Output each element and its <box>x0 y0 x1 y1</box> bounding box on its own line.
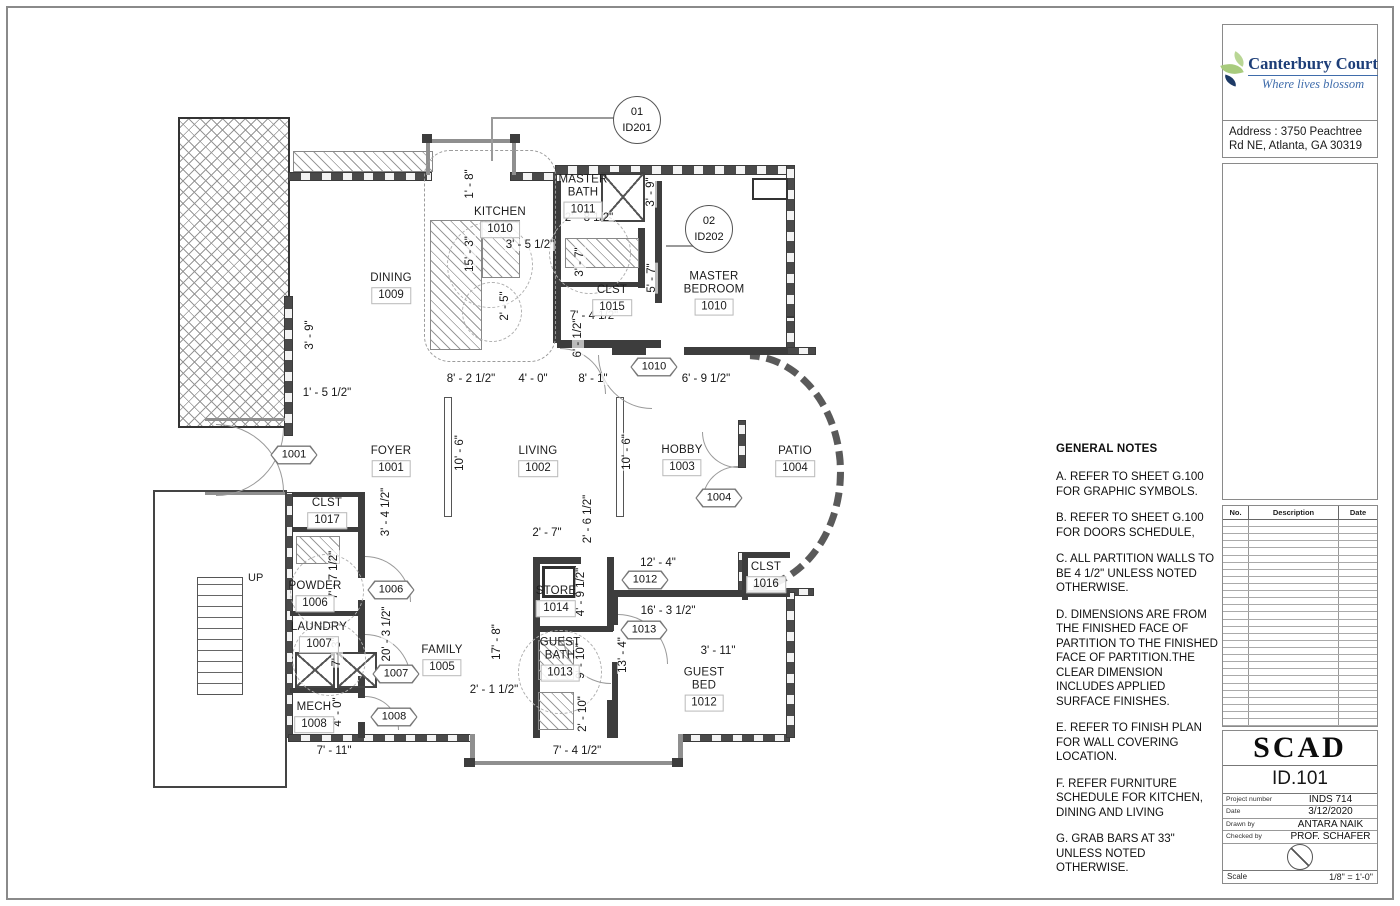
door-tag: 1013 <box>620 620 667 639</box>
wall-segment <box>284 296 293 436</box>
wall-segment <box>612 347 646 355</box>
leaf-icon <box>1223 74 1238 86</box>
revision-col-header: No. <box>1223 506 1249 519</box>
room-label-1011: MASTERBATH1011 <box>558 174 607 219</box>
dimension: 12' - 4" <box>639 557 677 569</box>
dimension: 2' - 5" <box>499 290 511 321</box>
wall-segment <box>672 758 683 767</box>
room-label-1012: GUESTBED1012 <box>684 667 725 712</box>
general-notes-title: GENERAL NOTES <box>1056 442 1218 456</box>
dimension: 16' - 3 1/2" <box>640 605 697 617</box>
wall-segment <box>358 534 365 578</box>
revision-row <box>1223 605 1377 612</box>
project-field-row: Project numberINDS 714 <box>1223 794 1377 807</box>
field-label: Checked by <box>1223 833 1284 840</box>
wall-segment <box>510 134 520 143</box>
room-label-1010: MASTERBEDROOM1010 <box>684 271 745 316</box>
revision-row <box>1223 712 1377 719</box>
dimension: 6' - 9 1/2" <box>681 373 731 385</box>
revision-row <box>1223 527 1377 534</box>
revision-row <box>1223 577 1377 584</box>
field-value: PROF. SCHAFER <box>1284 831 1377 842</box>
dimension: 15' - 3" <box>464 235 476 273</box>
revision-row <box>1223 719 1377 726</box>
revision-row <box>1223 612 1377 619</box>
door-tag: 1001 <box>270 445 317 464</box>
general-note: G. GRAB BARS AT 33" UNLESS NOTED OTHERWI… <box>1056 832 1218 875</box>
revision-table-rows <box>1223 520 1377 726</box>
project-field-row: Date3/12/2020 <box>1223 806 1377 819</box>
revision-row <box>1223 591 1377 598</box>
dimension: 2' - 6 1/2" <box>582 494 594 544</box>
revision-table-header: No.DescriptionDate <box>1223 506 1377 520</box>
dimension: 20' - 3 1/2" <box>381 606 393 663</box>
titleblock-logo-box: Canterbury Court Where lives blossom Add… <box>1222 24 1378 158</box>
room-label-1016: CLST1016 <box>746 561 786 593</box>
revision-row <box>1223 655 1377 662</box>
scale-value: 1/8" = 1'-0" <box>1329 872 1373 882</box>
door-tag: 1012 <box>621 570 668 589</box>
room-label-1006: POWDER1006 <box>289 580 342 612</box>
room-label-1015: CLST1015 <box>592 284 632 316</box>
room-label-1008: MECH1008 <box>294 701 334 733</box>
revision-row <box>1223 698 1377 705</box>
wall-segment <box>428 139 516 143</box>
wall-segment <box>738 420 746 468</box>
address: Address : 3750 Peachtree Rd NE, Atlanta,… <box>1223 120 1377 158</box>
room-label-1007: LAUNDRY1007 <box>291 621 347 653</box>
dimension: 5' - 7" <box>646 262 658 293</box>
north-symbol-row <box>1223 844 1377 871</box>
revision-col-header: Description <box>1249 506 1339 519</box>
room-label-1014: STORE1014 <box>536 585 576 617</box>
dimension: 2' - 1 1/2" <box>469 684 519 696</box>
detail-callout: 01ID201 <box>613 96 661 144</box>
dimension: 6' - 1/2" <box>572 318 584 359</box>
wall-segment <box>178 117 290 428</box>
room-label-1017: CLST1017 <box>307 497 347 529</box>
logo: Canterbury Court Where lives blossom <box>1223 25 1377 120</box>
field-label: Date <box>1223 808 1284 815</box>
wall-segment <box>288 172 432 181</box>
wall-segment <box>293 151 433 172</box>
door-tag: 1004 <box>695 488 742 507</box>
field-value: ANTARA NAIK <box>1284 819 1377 830</box>
door-tag: 1006 <box>367 580 414 599</box>
scale-row: Scale 1/8" = 1'-0" <box>1223 871 1377 883</box>
dimension: 1' - 8" <box>464 168 476 199</box>
wall-segment <box>444 397 452 517</box>
revision-row <box>1223 541 1377 548</box>
general-note: E. REFER TO FINISH PLAN FOR WALL COVERIN… <box>1056 721 1218 764</box>
dimension: 1' - 5 1/2" <box>302 387 352 399</box>
school-name: SCAD <box>1223 731 1377 766</box>
revision-row <box>1223 548 1377 555</box>
revision-row <box>1223 534 1377 541</box>
revision-row <box>1223 691 1377 698</box>
general-note: A. REFER TO SHEET G.100 FOR GRAPHIC SYMB… <box>1056 470 1218 499</box>
dimension: 13' - 4" <box>617 636 629 674</box>
dimension: 8' - 2 1/2" <box>446 373 496 385</box>
general-note: F. REFER FURNITURE SCHEDULE FOR KITCHEN,… <box>1056 777 1218 820</box>
room-label-1010: KITCHEN1010 <box>474 206 526 238</box>
revision-row <box>1223 676 1377 683</box>
dimension: 10' - 6" <box>454 434 466 472</box>
general-notes: GENERAL NOTES A. REFER TO SHEET G.100 FO… <box>1056 442 1218 888</box>
dimension: 3' - 4 1/2" <box>380 487 392 537</box>
revision-row <box>1223 662 1377 669</box>
dimension: 2' - 7" <box>531 527 562 539</box>
revision-row <box>1223 641 1377 648</box>
wall-segment <box>678 734 790 742</box>
project-field-row: Checked byPROF. SCHAFER <box>1223 831 1377 844</box>
dimension: 7' - 4 1/2" <box>552 745 602 757</box>
wall-segment <box>205 418 285 421</box>
field-label: Project number <box>1223 796 1284 803</box>
room-label-1003: HOBBY1003 <box>661 444 702 476</box>
clearance-circle <box>462 282 522 342</box>
general-note: D. DIMENSIONS ARE FROM THE FINISHED FACE… <box>1056 608 1218 709</box>
dimension: 3' - 5 1/2" <box>505 239 555 251</box>
dimension: 10' - 6" <box>621 433 633 471</box>
wall-segment <box>742 552 790 558</box>
wall-segment <box>492 117 614 119</box>
dimension: 7' - 11" <box>316 745 353 757</box>
revision-row <box>1223 520 1377 527</box>
dimension: 8' - 1" <box>577 373 608 385</box>
door-tag: 1007 <box>372 664 419 683</box>
revision-col-header: Date <box>1339 506 1377 519</box>
wall-segment <box>464 758 475 767</box>
revision-row <box>1223 584 1377 591</box>
revision-row <box>1223 684 1377 691</box>
wall-segment <box>358 492 365 534</box>
revision-row <box>1223 620 1377 627</box>
dimension: 4' - 0" <box>517 373 548 385</box>
dimension: 3' - 9" <box>304 319 316 350</box>
room-label-1002: LIVING1002 <box>518 445 558 477</box>
room-label-1005: FAMILY1005 <box>421 644 462 676</box>
room-label-1001: FOYER1001 <box>371 445 412 477</box>
logo-name: Canterbury Court <box>1248 54 1378 74</box>
revision-row <box>1223 598 1377 605</box>
wall-segment <box>752 178 788 200</box>
field-value: INDS 714 <box>1284 794 1377 805</box>
sheet-number: ID.101 <box>1223 766 1377 794</box>
field-label: Drawn by <box>1223 821 1284 828</box>
revision-table: No.DescriptionDate <box>1222 505 1378 727</box>
north-arrow-icon <box>1287 844 1313 870</box>
revision-row <box>1223 634 1377 641</box>
clearance-circle <box>549 212 631 294</box>
general-note: C. ALL PARTITION WALLS TO BE 4 1/2" UNLE… <box>1056 552 1218 595</box>
revision-row <box>1223 627 1377 634</box>
wall-segment <box>533 557 581 564</box>
revision-row <box>1223 705 1377 712</box>
up-label: UP <box>248 572 263 584</box>
revision-row <box>1223 563 1377 570</box>
dimension: 4' - 9 1/2" <box>575 567 587 617</box>
dimension: 3' - 9" <box>645 176 657 207</box>
revision-row <box>1223 570 1377 577</box>
wall-segment <box>638 228 645 288</box>
door-tag: 1010 <box>630 357 677 376</box>
titleblock-bottom-box: SCAD ID.101 Project numberINDS 714Date3/… <box>1222 730 1378 884</box>
room-label-1013: GUESTBATH1013 <box>540 637 581 682</box>
wall-segment <box>422 134 432 143</box>
stairs <box>197 577 243 695</box>
titleblock-empty-box <box>1222 163 1378 500</box>
room-label-1009: DINING1009 <box>370 272 411 304</box>
field-value: 3/12/2020 <box>1284 806 1377 817</box>
general-note: B. REFER TO SHEET G.100 FOR DOORS SCHEDU… <box>1056 511 1218 540</box>
dimension: 3' - 7" <box>574 246 586 277</box>
logo-tagline: Where lives blossom <box>1248 75 1378 92</box>
dimension: 2' - 10" <box>577 695 589 733</box>
dimension: 4' - 0" <box>332 696 344 727</box>
dimension: 3' - 11" <box>700 645 737 657</box>
wall-segment <box>358 722 365 738</box>
project-fields: Project numberINDS 714Date3/12/2020Drawn… <box>1223 794 1377 844</box>
dimension: 17' - 8" <box>491 623 503 661</box>
room-label-1004: PATIO1004 <box>775 445 815 477</box>
revision-row <box>1223 648 1377 655</box>
wall-segment <box>684 347 788 355</box>
revision-row <box>1223 556 1377 563</box>
general-notes-list: A. REFER TO SHEET G.100 FOR GRAPHIC SYMB… <box>1056 470 1218 875</box>
wall-segment <box>288 734 474 742</box>
wall-segment <box>786 592 795 738</box>
wall-segment <box>470 761 683 765</box>
door-arc <box>702 432 738 468</box>
wall-segment <box>786 347 816 355</box>
revision-row <box>1223 669 1377 676</box>
project-field-row: Drawn byANTARA NAIK <box>1223 819 1377 832</box>
scale-label: Scale <box>1227 872 1247 881</box>
door-tag: 1008 <box>370 707 417 726</box>
detail-callout: 02ID202 <box>685 205 733 253</box>
